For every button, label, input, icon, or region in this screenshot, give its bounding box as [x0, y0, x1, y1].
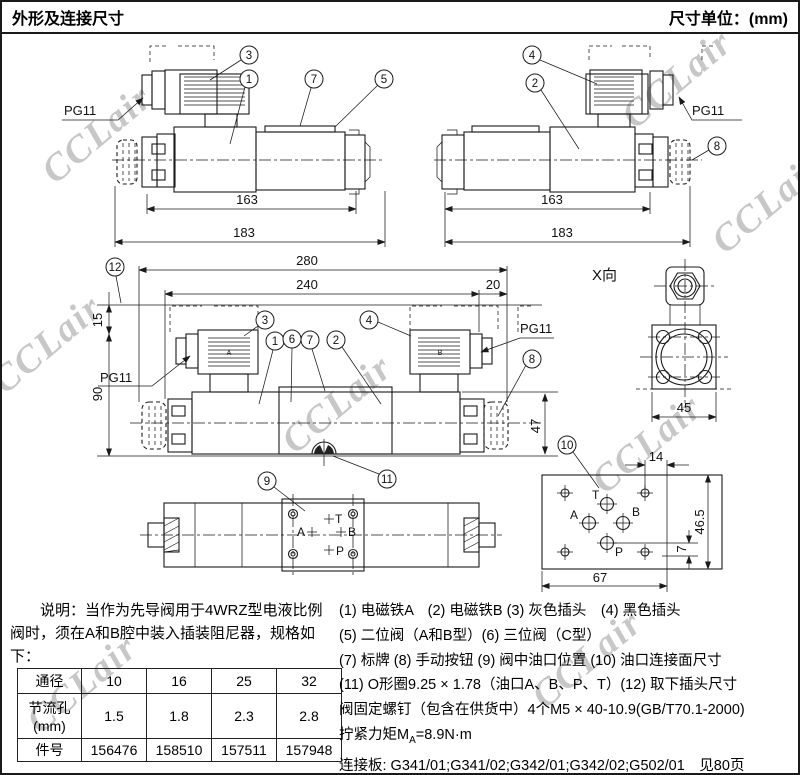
callout-11: 11: [333, 456, 396, 488]
torque-subscript: A: [409, 735, 416, 746]
table-cell: 10: [82, 669, 147, 694]
dim-45: 45: [677, 400, 691, 415]
valve-front-view: A B: [90, 253, 599, 488]
damper-spec-table: 通径 10 16 25 32 节流孔 (mm) 1.5 1.8 2.3 2.8 …: [17, 668, 342, 762]
table-cell: 2.8: [277, 694, 342, 739]
callout-6: 6: [283, 330, 301, 402]
table-cell: 158510: [147, 739, 212, 762]
port-a-label: A: [297, 525, 305, 539]
port-b-label: B: [348, 525, 356, 539]
callout-1b: 1: [259, 332, 284, 404]
svg-text:6: 6: [289, 334, 295, 346]
port-a-label: A: [570, 508, 578, 522]
svg-text:2: 2: [532, 78, 538, 90]
legend-line-2: (5) 二位阀（A和B型）(6) 三位阀（C型）: [339, 624, 799, 649]
table-row: 件号 156476 158510 157511 157948: [18, 739, 342, 762]
dim-14: 14: [649, 449, 663, 464]
x-view-label: X向: [592, 267, 617, 284]
pg11-label: PG11: [100, 370, 132, 385]
dim-15: 15: [90, 313, 105, 327]
table-cell: 157511: [212, 739, 277, 762]
pg11-label: PG11: [64, 103, 96, 118]
svg-text:11: 11: [381, 474, 393, 486]
legend-line-6: 拧紧力矩MA=8.9N·m: [339, 723, 799, 754]
port-b-label: B: [632, 505, 640, 519]
page-title: 外形及连接尺寸: [12, 5, 124, 29]
svg-text:1: 1: [272, 336, 278, 348]
table-cell: 32: [277, 669, 342, 694]
table-cell: 25: [212, 669, 277, 694]
torque-suffix: =8.9N·m: [416, 727, 472, 743]
callout-7: 7: [300, 70, 323, 126]
pg11-label: PG11: [520, 321, 552, 336]
table-cell: 16: [147, 669, 212, 694]
svg-text:3: 3: [262, 315, 268, 327]
svg-text:8: 8: [529, 354, 535, 366]
dim-67: 67: [593, 570, 607, 585]
callout-2: 2: [526, 74, 579, 149]
notes-block: 说明：当作为先导阀用于4WRZ型电液比例阀时，须在A和B腔中装入插装阻尼器，规格…: [10, 599, 334, 668]
dim-163-right: 163: [541, 192, 563, 207]
legend-line-1: (1) 电磁铁A (2) 电磁铁B (3) 灰色插头 (4) 黑色插头: [339, 599, 799, 624]
valve-side-view-right: PG11 4 2 8 163 183: [434, 46, 742, 247]
dim-240: 240: [296, 277, 318, 292]
valve-side-view-left: PG11 3 1 7 5 163: [62, 46, 393, 247]
port-p-label: P: [336, 544, 344, 558]
torque-prefix: 拧紧力矩M: [339, 727, 409, 743]
table-cell: 1.5: [82, 694, 147, 739]
dim-183-right: 183: [551, 225, 573, 240]
svg-text:3: 3: [246, 50, 252, 62]
callout-8b: 8: [498, 350, 541, 416]
svg-text:8: 8: [714, 141, 720, 153]
coil-b-mark: B: [438, 350, 443, 357]
dim-163-left: 163: [236, 192, 258, 207]
coil-a-mark: A: [227, 350, 232, 357]
row-header: 通径: [18, 669, 82, 694]
dim-90: 90: [90, 387, 105, 401]
callout-4b: 4: [360, 311, 411, 336]
dim-183-left: 183: [233, 225, 255, 240]
dim-280: 280: [296, 253, 318, 268]
row-header: 节流孔 (mm): [18, 694, 82, 739]
port-t-label: T: [335, 512, 343, 526]
table-cell: 156476: [82, 739, 147, 762]
callout-5: 5: [335, 70, 393, 127]
callout-3b: 3: [244, 311, 274, 336]
svg-text:5: 5: [381, 74, 387, 86]
svg-text:12: 12: [109, 262, 122, 274]
dim-47: 47: [528, 419, 543, 433]
port-face-view: T A B P 14 46.5 7 67: [542, 449, 722, 592]
callout-10: 10: [558, 436, 599, 488]
table-row: 节流孔 (mm) 1.5 1.8 2.3 2.8: [18, 694, 342, 739]
table-cell: 157948: [277, 739, 342, 762]
table-cell: 2.3: [212, 694, 277, 739]
table-row: 通径 10 16 25 32: [18, 669, 342, 694]
pg11-label: PG11: [692, 103, 724, 118]
table-cell: 1.8: [147, 694, 212, 739]
callout-8: 8: [692, 137, 726, 160]
dim-46-5: 46.5: [692, 509, 707, 534]
page-header: 外形及连接尺寸 尺寸单位：(mm): [2, 2, 798, 34]
valve-bottom-view: T A B P 9: [140, 472, 502, 576]
dim-20: 20: [486, 277, 500, 292]
unit-label: 尺寸单位：(mm): [669, 5, 788, 29]
svg-text:7: 7: [311, 74, 317, 86]
notes-text: 说明：当作为先导阀用于4WRZ型电液比例阀时，须在A和B腔中装入插装阻尼器，规格…: [10, 599, 334, 668]
legend-block: (1) 电磁铁A (2) 电磁铁B (3) 灰色插头 (4) 黑色插头 (5) …: [339, 599, 799, 775]
catalog-page: 外形及连接尺寸 尺寸单位：(mm) CCLair CCLair CCLair C…: [0, 0, 800, 775]
svg-text:4: 4: [366, 315, 373, 327]
svg-text:4: 4: [529, 50, 536, 62]
svg-text:2: 2: [333, 335, 339, 347]
x-view: X向 45: [592, 259, 732, 422]
callout-7b: 7: [301, 331, 325, 391]
svg-text:1: 1: [246, 74, 252, 86]
svg-text:9: 9: [264, 476, 270, 488]
svg-text:7: 7: [307, 335, 313, 347]
row-header: 件号: [18, 739, 82, 762]
legend-line-7: 连接板: G341/01;G341/02;G342/01;G342/02;G50…: [339, 754, 799, 775]
callout-2b: 2: [327, 331, 381, 404]
legend-line-3: (7) 标牌 (8) 手动按钮 (9) 阀中油口位置 (10) 油口连接面尺寸: [339, 649, 799, 674]
svg-text:10: 10: [561, 440, 574, 452]
legend-line-5: 阀固定螺钉（包含在供货中）4个M5 × 40-10.9(GB/T70.1-200…: [339, 698, 799, 723]
port-t-label: T: [592, 488, 600, 502]
port-p-label: P: [615, 545, 623, 559]
legend-line-4: (11) O形圈9.25 × 1.78（油口A、B、P、T）(12) 取下插头尺…: [339, 673, 799, 698]
dim-7: 7: [674, 545, 689, 552]
